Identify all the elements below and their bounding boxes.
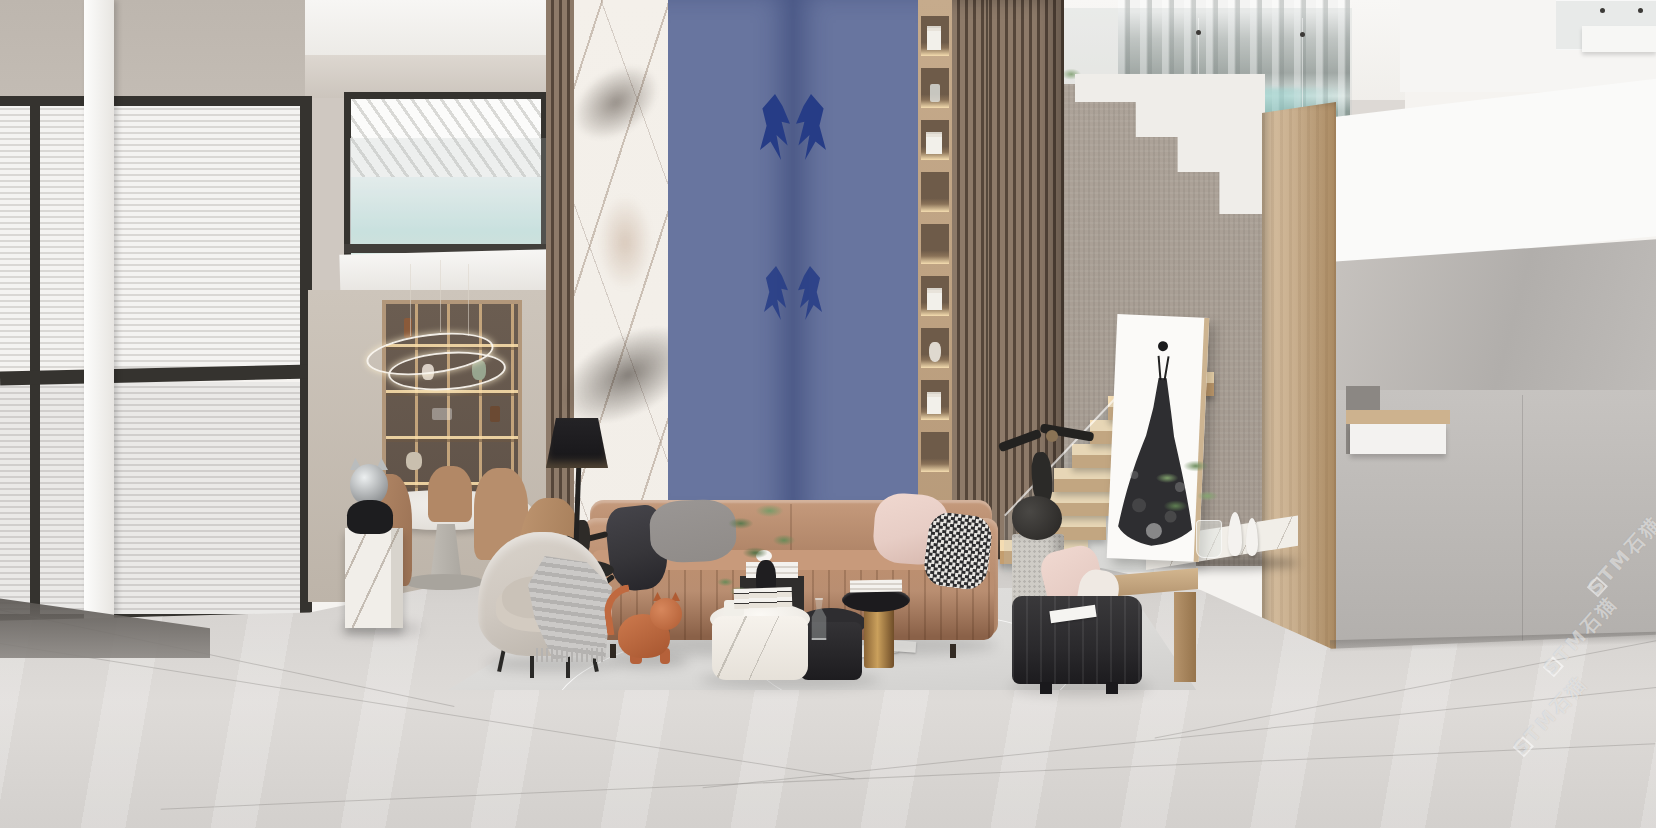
lit-niche <box>921 380 949 420</box>
dining-chair <box>428 466 472 522</box>
cabinet-bottle <box>490 406 500 422</box>
chandelier-wire <box>468 264 469 336</box>
side-table-books <box>850 580 902 593</box>
wall-corner-seam <box>1522 395 1523 645</box>
parapet-slab <box>1582 26 1656 52</box>
throw-fringe <box>536 648 606 662</box>
chandelier-wire <box>440 260 441 332</box>
marble-vein <box>598 195 652 290</box>
sodalite-slab-left <box>668 0 793 516</box>
glass-balustrade <box>350 138 546 246</box>
lit-niche <box>921 16 949 56</box>
sculpture-base <box>1012 496 1062 540</box>
marble-pedestal <box>345 528 403 628</box>
living-room-render: STM石猫 STM石猫 STM石猫 <box>0 0 1656 828</box>
window-frame <box>0 96 312 106</box>
cabinet-glassware <box>432 408 452 420</box>
window-wall-blinds <box>0 96 312 628</box>
sodalite-motif <box>796 94 826 160</box>
wood-slat-column <box>546 0 576 560</box>
glass-clamp <box>1600 8 1605 13</box>
ceiling-left <box>305 0 567 58</box>
shelf-niche-column <box>918 0 952 556</box>
black-coffee-table-body <box>800 622 862 680</box>
books <box>927 26 941 50</box>
cabinet-vase <box>406 452 422 470</box>
lit-niche <box>921 432 949 472</box>
venetian-blind-panel <box>40 104 300 368</box>
floating-shelf <box>1346 410 1450 424</box>
vase <box>929 342 941 362</box>
venetian-blind-panel <box>40 382 300 614</box>
marble-coffee-table-body <box>712 616 808 680</box>
bench-foot <box>1106 682 1118 694</box>
sculpture-head <box>1046 430 1058 442</box>
white-pilaster <box>84 0 114 695</box>
lit-niche <box>921 172 949 212</box>
glass-clamp <box>1638 8 1643 13</box>
blue-sodalite-feature-wall <box>668 0 918 516</box>
sodalite-motif <box>798 266 822 320</box>
books <box>926 132 942 154</box>
lit-niche <box>921 120 949 160</box>
venetian-blind-panel <box>0 104 30 368</box>
mezzanine-left <box>340 52 552 304</box>
books <box>927 288 942 310</box>
gold-side-table-base <box>864 606 894 668</box>
slat-panel-seam <box>986 0 988 560</box>
bench-foot <box>1040 682 1052 694</box>
sodalite-slab-right <box>793 0 918 516</box>
sodalite-motif <box>764 266 788 320</box>
bench-wood-leg <box>1174 592 1196 682</box>
books <box>927 392 941 414</box>
glass-cup <box>930 84 940 102</box>
floating-drawer <box>1350 424 1446 454</box>
coffee-table-books <box>734 587 793 609</box>
sodalite-motif <box>760 94 790 160</box>
lit-niche <box>921 68 949 108</box>
lit-niche <box>921 328 949 368</box>
cat-sculpture-body <box>347 500 393 534</box>
window-mullion <box>30 96 40 626</box>
venetian-blind-panel <box>0 382 30 614</box>
glass-jar <box>1196 520 1222 558</box>
lit-niche <box>921 276 949 316</box>
floor-lamp-shade <box>546 418 608 468</box>
cat-figurine-head <box>650 598 682 630</box>
glass-clamp <box>1196 30 1201 35</box>
pillow-houndstooth <box>922 510 995 591</box>
lit-niche <box>921 224 949 264</box>
dining-table-base <box>404 574 484 590</box>
glass-clamp <box>1300 32 1305 37</box>
sofa-leg <box>950 644 956 658</box>
chandelier-wire <box>410 264 411 336</box>
